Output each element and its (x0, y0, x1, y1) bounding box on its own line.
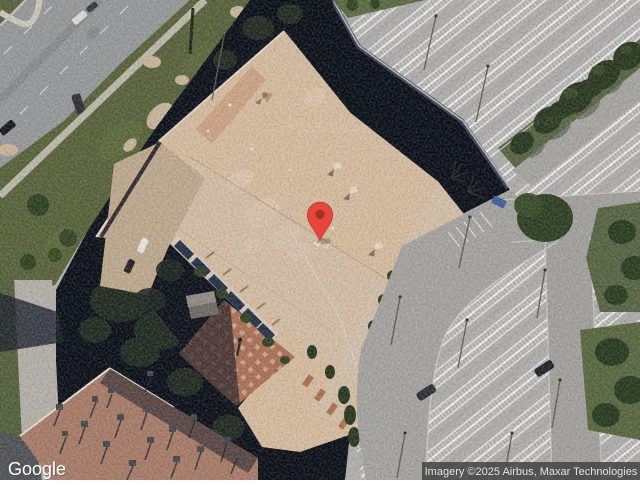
svg-text:Google: Google (8, 459, 66, 479)
svg-text:Imagery ©2025 Airbus, Maxar Te: Imagery ©2025 Airbus, Maxar Technologies (425, 466, 638, 478)
